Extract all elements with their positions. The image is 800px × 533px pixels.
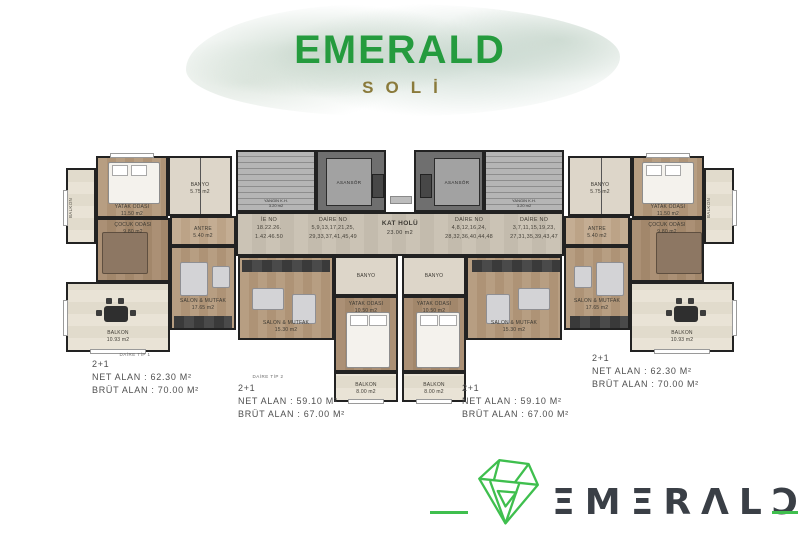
logo-dash-right: [772, 511, 798, 514]
elevator-label: ASANSÖR: [445, 180, 470, 185]
room-label: SALON & MUTFAK 17.65 m2: [566, 298, 628, 311]
unit-tip-label-2: DAİRE TİP 2: [238, 374, 298, 379]
room-label: BANYO: [404, 273, 464, 280]
unit-number-label-2: DAİRE NO 5,9,13,17,21,25, 29,33,37,41,45…: [300, 216, 366, 241]
kitchen-counter: [570, 316, 628, 328]
room-bath-inner-left: BANYO: [334, 256, 398, 296]
pillow: [439, 315, 457, 326]
chair: [130, 310, 136, 316]
room-label: SALON & MUTFAK 15.30 m2: [240, 320, 332, 333]
emerald-gem-icon: [468, 454, 546, 528]
unit-number-label-4: DAİRE NO 3,7,11,15,19,23, 27,31,35,39,43…: [504, 216, 564, 241]
pillow: [350, 315, 368, 326]
room-label: SALON & MUTFAK 15.30 m2: [468, 320, 560, 333]
armchair: [574, 266, 592, 288]
window: [732, 190, 737, 226]
room-antre-right: ANTRE 5.40 m2: [564, 216, 630, 246]
room-label: BANYO: [336, 273, 396, 280]
room-antre-left: ANTRE 5.40 m2: [170, 216, 236, 246]
shaft-box: [372, 174, 384, 198]
room-bedroom-inner-left: YATAK ODASI 10.50 m2: [334, 296, 398, 372]
unit-net-area: NET ALAN : 59.10 M²: [462, 395, 569, 408]
room-label: ANTRE 5.40 m2: [172, 226, 234, 239]
dining-table: [104, 306, 128, 322]
room-label: YATAK ODASI 10.50 m2: [336, 301, 396, 314]
unit-number-label-1: İE NO 18.22.26. 1.42.46.50: [240, 216, 298, 241]
bed: [642, 162, 694, 204]
room-label: BANYO 5.75 m2: [570, 182, 630, 195]
chair: [118, 298, 124, 304]
unit-type: 2+1: [238, 382, 345, 395]
side-balcony-left: BALKON: [66, 168, 96, 244]
unit-spec-1: 2+1 NET ALAN : 62.30 M² BRÜT ALAN : 70.0…: [92, 358, 199, 397]
room-kids-room-right: ÇOCUK ODASI 9.80 m2: [630, 218, 704, 282]
room-label: YATAK ODASI 11.50 m2: [98, 204, 166, 217]
unit-spec-2: 2+1 NET ALAN : 59.10 M² BRÜT ALAN : 67.0…: [238, 382, 345, 421]
bed: [346, 312, 390, 368]
window: [63, 300, 68, 336]
bed: [656, 232, 702, 274]
entry-gap: [386, 150, 414, 212]
logo-dash-left: [430, 511, 468, 514]
bed: [102, 232, 148, 274]
room-label: YATAK ODASI 11.50 m2: [634, 204, 702, 217]
pillow: [112, 165, 128, 176]
room-bathroom-right: BANYO 5.75 m2: [568, 156, 632, 216]
fire-stair-label: YANGIN K.H. 3.20 m2: [238, 198, 314, 208]
room-living-outer-left: SALON & MUTFAK 17.65 m2: [170, 246, 236, 330]
room-bedroom-inner-right: YATAK ODASI 10.50 m2: [402, 296, 466, 372]
footer-brand-wordmark: ΞMΞRΛLƆ: [552, 482, 800, 523]
fire-stair-label: YANGIN K.H. 3.20 m2: [486, 198, 562, 208]
chair: [676, 298, 682, 304]
unit-number-label-3: DAİRE NO 4,8,12,16,24, 28,32,36,40,44,48: [436, 216, 502, 241]
sofa: [252, 288, 284, 310]
unit-type: 2+1: [462, 382, 569, 395]
elevator: ASANSÖR: [326, 158, 372, 206]
window: [63, 190, 68, 226]
room-bath-inner-right: BANYO: [402, 256, 466, 296]
room-label: ANTRE 5.40 m2: [566, 226, 628, 239]
pillow: [131, 165, 147, 176]
side-balcony-right: BALKON: [704, 168, 734, 244]
unit-spec-3: 2+1 NET ALAN : 59.10 M² BRÜT ALAN : 67.0…: [462, 382, 569, 421]
unit-spec-4: 2+1 NET ALAN : 62.30 M² BRÜT ALAN : 70.0…: [592, 352, 699, 391]
room-living-inner-left: SALON & MUTFAK 15.30 m2: [238, 256, 334, 340]
chair: [700, 310, 706, 316]
unit-gross-area: BRÜT ALAN : 70.00 M²: [592, 378, 699, 391]
sofa: [596, 262, 624, 296]
shaft-box: [420, 174, 432, 198]
elevator-core-right: ASANSÖR: [414, 150, 484, 212]
window: [348, 399, 384, 404]
room-kids-room-left: ÇOCUK ODASI 9.80 m2: [96, 218, 170, 282]
room-label: BALKON 8.00 m2: [336, 382, 396, 395]
bed: [108, 162, 160, 204]
room-label: ÇOCUK ODASI 9.80 m2: [98, 222, 168, 235]
room-master-bedroom-left: YATAK ODASI 11.50 m2: [96, 156, 168, 218]
window: [416, 399, 452, 404]
window: [646, 153, 690, 158]
entry-step: [390, 196, 412, 204]
room-bathroom-left: BANYO 5.75 m2: [168, 156, 232, 216]
chair: [96, 310, 102, 316]
chair: [106, 298, 112, 304]
project-subtitle: SOLİ: [12, 78, 800, 98]
unit-gross-area: BRÜT ALAN : 70.00 M²: [92, 384, 199, 397]
elevator: ASANSÖR: [434, 158, 480, 206]
unit-gross-area: BRÜT ALAN : 67.00 M²: [238, 408, 345, 421]
room-label: ÇOCUK ODASI 9.80 m2: [632, 222, 702, 235]
unit-tip-label-1: DAİRE TİP 1: [96, 352, 174, 357]
dining-table: [674, 306, 698, 322]
elevator-core-left: ASANSÖR: [316, 150, 386, 212]
room-label: SALON & MUTFAK 17.65 m2: [172, 298, 234, 311]
room-label: BALKON 8.00 m2: [404, 382, 464, 395]
room-master-bedroom-right: YATAK ODASI 11.50 m2: [632, 156, 704, 218]
room-living-outer-right: SALON & MUTFAK 17.65 m2: [564, 246, 630, 330]
window: [732, 300, 737, 336]
room-label: BANYO 5.75 m2: [170, 182, 230, 195]
room-label: BALKON 10.93 m2: [68, 330, 168, 343]
room-living-inner-right: SALON & MUTFAK 15.30 m2: [466, 256, 562, 340]
unit-gross-area: BRÜT ALAN : 67.00 M²: [462, 408, 569, 421]
room-label: BALKON: [68, 178, 94, 238]
room-label: YATAK ODASI 10.50 m2: [404, 301, 464, 314]
bed: [416, 312, 460, 368]
balcony-inner-right: BALKON 8.00 m2: [402, 372, 466, 402]
project-title: EMERALD: [0, 28, 800, 73]
chair: [688, 298, 694, 304]
chair: [666, 310, 672, 316]
stairwell-right: YANGIN K.H. 3.20 m2: [484, 150, 564, 212]
unit-type: 2+1: [92, 358, 199, 371]
pillow: [420, 315, 438, 326]
kitchen-counter: [472, 260, 560, 272]
room-label: BALKON: [706, 178, 732, 238]
unit-type: 2+1: [592, 352, 699, 365]
window: [110, 153, 154, 158]
balcony-bottom-right: BALKON 10.93 m2: [630, 282, 734, 352]
balcony-bottom-left: BALKON 10.93 m2: [66, 282, 170, 352]
kitchen-counter: [242, 260, 330, 272]
floor-plan-page: EMERALD SOLİ BALKON YATAK ODASI 11.50 m2…: [0, 0, 800, 533]
room-label: BALKON 10.93 m2: [632, 330, 732, 343]
sofa: [518, 288, 550, 310]
kitchen-counter: [174, 316, 232, 328]
armchair: [212, 266, 230, 288]
pillow: [665, 165, 681, 176]
elevator-label: ASANSÖR: [337, 180, 362, 185]
hall-label: KAT HOLÜ 23.00 m2: [368, 219, 432, 237]
pillow: [646, 165, 662, 176]
sofa: [180, 262, 208, 296]
unit-net-area: NET ALAN : 62.30 M²: [592, 365, 699, 378]
pillow: [369, 315, 387, 326]
unit-net-area: NET ALAN : 59.10 M²: [238, 395, 345, 408]
unit-net-area: NET ALAN : 62.30 M²: [92, 371, 199, 384]
stairwell-left: YANGIN K.H. 3.20 m2: [236, 150, 316, 212]
